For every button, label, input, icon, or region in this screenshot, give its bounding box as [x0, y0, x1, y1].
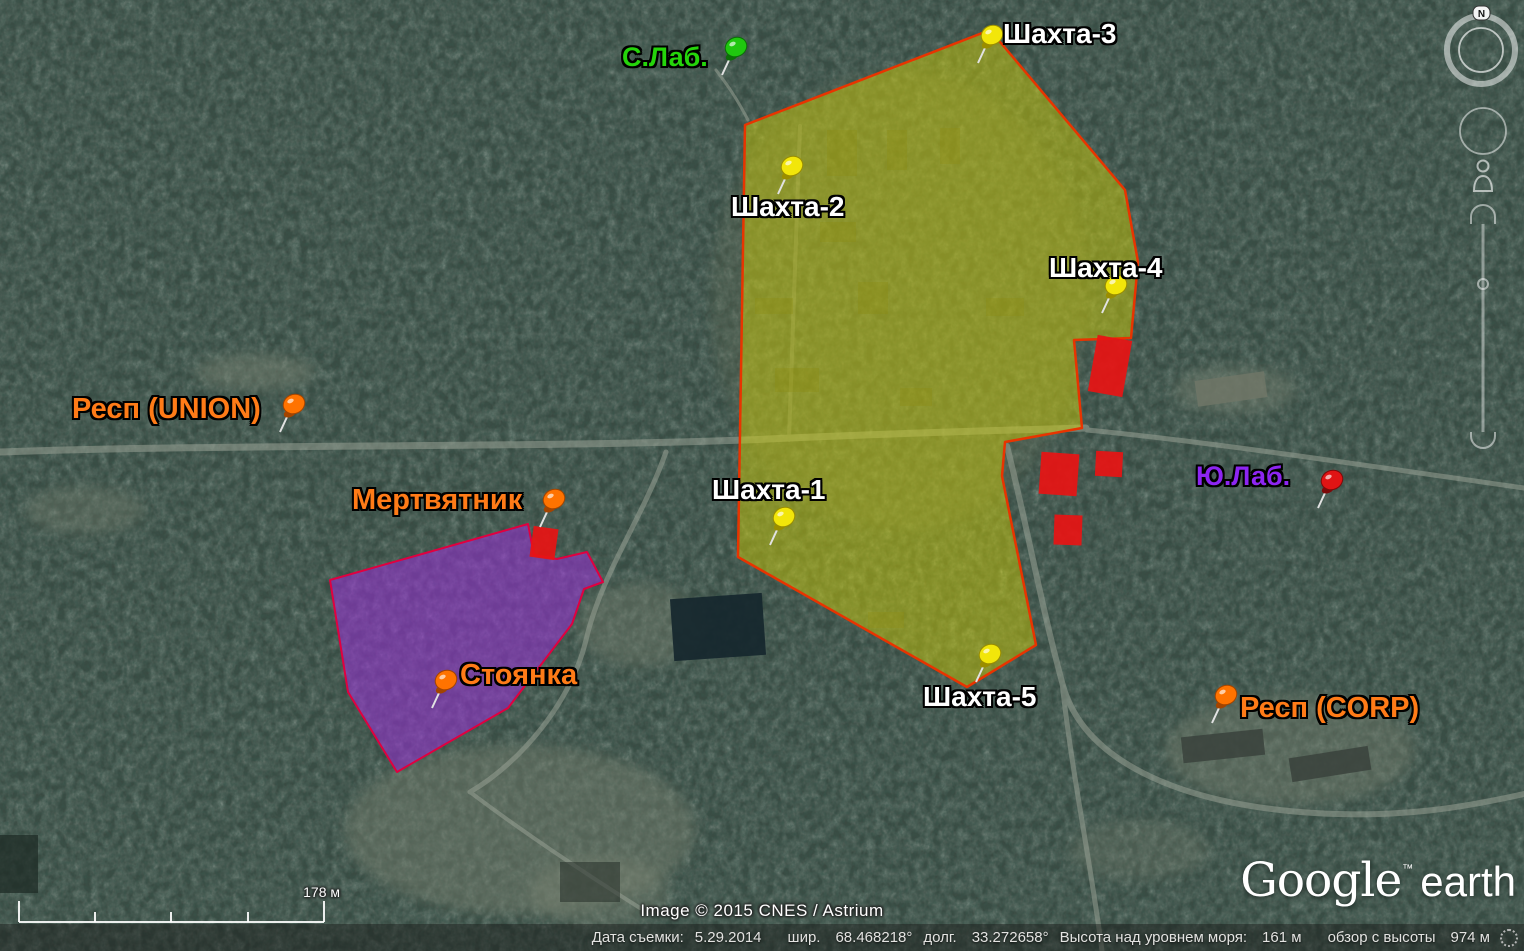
stoyanka-label[interactable]: Стоянка: [460, 661, 577, 690]
elevation-value: 161 м: [1262, 929, 1302, 946]
yu-lab-label[interactable]: Ю.Лаб.: [1196, 463, 1290, 490]
s-lab-label[interactable]: С.Лаб.: [622, 44, 708, 71]
google-earth-window: Шахта-3Шахта-2Шахта-4Шахта-1Шахта-5С.Лаб…: [0, 0, 1524, 951]
highlighted-building[interactable]: [529, 526, 558, 560]
compass-control[interactable]: N: [1447, 6, 1515, 84]
resp-union-label[interactable]: Респ (UNION): [72, 395, 261, 424]
resp-corp-label[interactable]: Респ (CORP): [1240, 694, 1419, 723]
elevation-label: Высота над уровнем моря:: [1060, 929, 1247, 946]
highlighted-building[interactable]: [1095, 451, 1123, 477]
streetview-pegman-icon[interactable]: [1474, 161, 1492, 192]
capture-date-value: 5.29.2014: [695, 929, 762, 946]
shahta-2-label[interactable]: Шахта-2: [731, 193, 844, 221]
north-indicator: N: [1478, 9, 1485, 20]
look-joystick[interactable]: [1460, 108, 1506, 154]
mertvyatnik-label[interactable]: Мертвятник: [352, 486, 522, 515]
latitude-label: шир.: [788, 929, 821, 946]
streaming-spinner-icon: [1500, 929, 1518, 947]
highlighted-building[interactable]: [1039, 452, 1080, 497]
shahta-3-label[interactable]: Шахта-3: [1003, 20, 1116, 48]
navigation-controls: N: [1414, 0, 1524, 460]
shahta-4-label[interactable]: Шахта-4: [1049, 254, 1162, 282]
logo-earth-text: earth: [1420, 858, 1516, 906]
google-earth-logo: Google ™ earth: [1240, 853, 1516, 908]
logo-google-text: Google: [1240, 853, 1401, 908]
shahta-5-label[interactable]: Шахта-5: [923, 683, 1036, 711]
capture-date-label: Дата съемки:: [592, 929, 684, 946]
status-bar: Дата съемки: 5.29.2014 шир. 68.468218° д…: [0, 924, 1524, 951]
longitude-label: долг.: [923, 929, 956, 946]
scale-bar: [0, 870, 360, 930]
latitude-value: 68.468218°: [835, 929, 912, 946]
logo-trademark: ™: [1402, 863, 1413, 875]
eye-altitude-label: обзор с высоты: [1328, 929, 1436, 946]
zoom-slider[interactable]: [1471, 205, 1495, 448]
highlighted-building[interactable]: [1053, 515, 1082, 546]
shahta-1-label[interactable]: Шахта-1: [712, 476, 825, 504]
scale-bar-label: 178 м: [284, 884, 340, 900]
eye-altitude-value: 974 м: [1450, 929, 1490, 946]
longitude-value: 33.272658°: [972, 929, 1049, 946]
